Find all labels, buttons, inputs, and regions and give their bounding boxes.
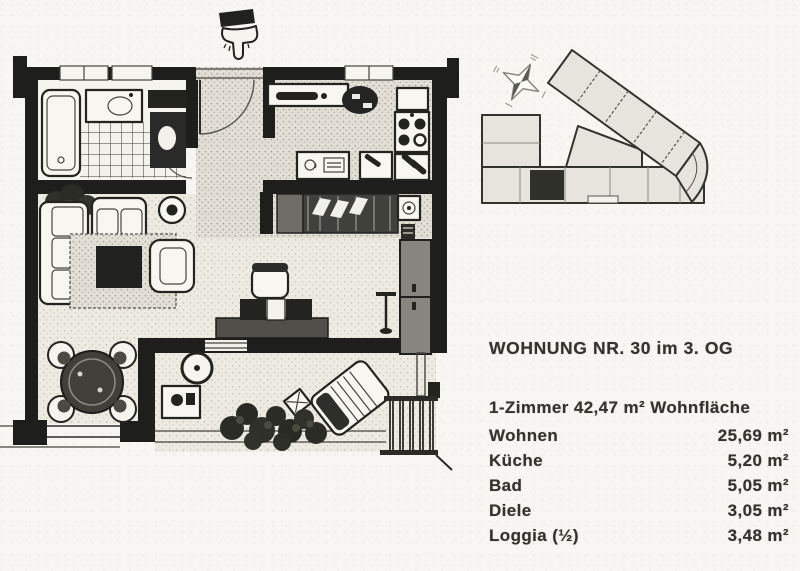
highlighted-apartment-unit xyxy=(530,170,564,200)
apartment-title: WOHNUNG NR. 30 im 3. OG xyxy=(489,338,789,359)
building-overview-plan xyxy=(480,40,720,210)
room-row: Diele 3,05 m² xyxy=(489,499,789,524)
room-area-value: 3,05 m² xyxy=(728,499,789,524)
room-label: Loggia (½) xyxy=(489,524,579,549)
room-area-value: 5,20 m² xyxy=(728,449,789,474)
building-outline xyxy=(482,50,707,203)
room-label: Küche xyxy=(489,449,543,474)
floor-plan-drawing xyxy=(0,0,470,571)
room-area-value: 25,69 m² xyxy=(718,424,789,449)
room-area-table: Wohnen 25,69 m² Küche 5,20 m² Bad 5,05 m… xyxy=(489,424,789,549)
hand-pointer-icon xyxy=(219,9,257,59)
apartment-info: WOHNUNG NR. 30 im 3. OG 1-Zimmer 42,47 m… xyxy=(489,338,789,549)
room-row: Loggia (½) 3,48 m² xyxy=(489,524,789,549)
room-label: Bad xyxy=(489,474,522,499)
scanned-floorplan-page: WOHNUNG NR. 30 im 3. OG 1-Zimmer 42,47 m… xyxy=(0,0,800,571)
room-label: Diele xyxy=(489,499,532,524)
room-label: Wohnen xyxy=(489,424,558,449)
apartment-summary: 1-Zimmer 42,47 m² Wohnfläche xyxy=(489,398,789,418)
dining-set xyxy=(48,342,136,422)
compass-icon xyxy=(483,43,557,117)
room-area-value: 3,48 m² xyxy=(728,524,789,549)
room-row: Küche 5,20 m² xyxy=(489,449,789,474)
room-row: Bad 5,05 m² xyxy=(489,474,789,499)
room-row: Wohnen 25,69 m² xyxy=(489,424,789,449)
room-area-value: 5,05 m² xyxy=(728,474,789,499)
